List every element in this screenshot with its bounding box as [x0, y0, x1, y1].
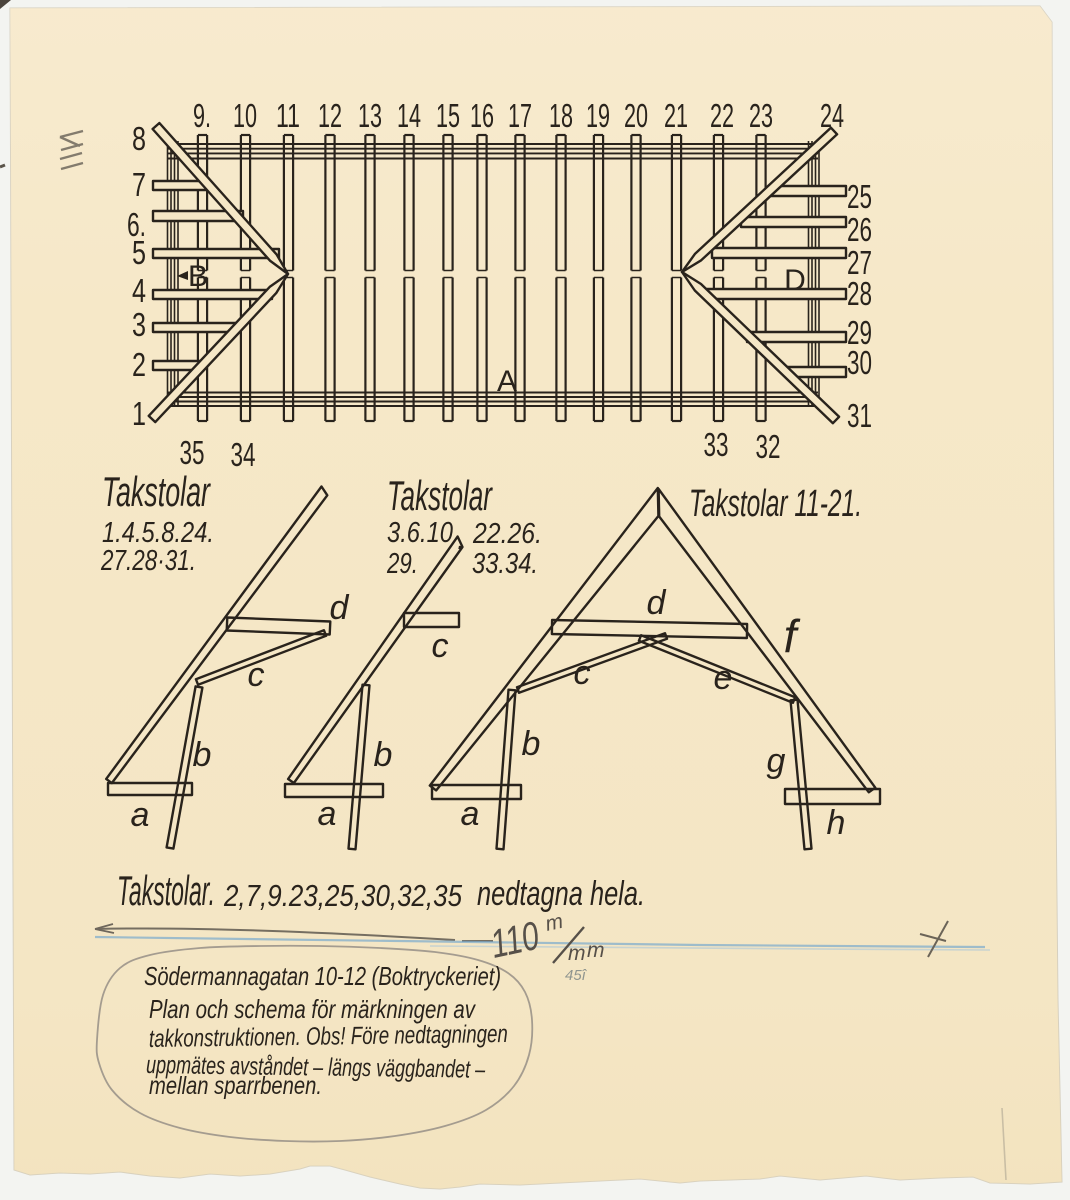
svg-text:c: c	[574, 654, 591, 692]
svg-text:Plan och schema för märkningen: Plan och schema för märkningen av	[149, 994, 477, 1024]
svg-text:a: a	[461, 795, 480, 833]
svg-text:1: 1	[132, 395, 146, 432]
svg-text:34: 34	[231, 436, 256, 473]
svg-text:m: m	[587, 939, 605, 962]
svg-text:a: a	[318, 795, 337, 833]
svg-text:e: e	[714, 659, 733, 697]
svg-text:4: 4	[132, 272, 146, 309]
svg-text:45î: 45î	[565, 967, 588, 984]
svg-text:26: 26	[847, 211, 872, 248]
svg-text:b: b	[522, 725, 541, 763]
svg-text:12: 12	[318, 97, 342, 134]
svg-text:Södermannagatan 10-12 (Boktryc: Södermannagatan 10-12 (Boktryckeriet)	[144, 961, 501, 991]
svg-text:17: 17	[508, 97, 532, 134]
svg-text:32: 32	[756, 428, 781, 465]
svg-text:d: d	[647, 584, 667, 622]
svg-text:14: 14	[397, 97, 421, 134]
svg-text:c: c	[432, 627, 449, 665]
svg-text:3.6.10: 3.6.10	[387, 517, 453, 549]
svg-text:23: 23	[749, 97, 773, 134]
svg-text:7: 7	[132, 166, 146, 203]
svg-text:22: 22	[710, 97, 734, 134]
svg-text:2,7,9.23,25,30,32,35: 2,7,9.23,25,30,32,35	[223, 878, 462, 913]
svg-text:Takstolar: Takstolar	[387, 472, 493, 519]
svg-text:3: 3	[132, 306, 146, 343]
svg-text:30: 30	[847, 344, 872, 381]
svg-text:13: 13	[358, 97, 382, 134]
svg-text:24: 24	[820, 97, 844, 134]
svg-text:m: m	[568, 942, 586, 965]
svg-text:a: a	[131, 796, 150, 834]
svg-text:19: 19	[586, 97, 610, 134]
svg-text:h: h	[827, 804, 846, 842]
svg-text:16: 16	[470, 97, 494, 134]
svg-text:d: d	[330, 589, 350, 627]
svg-text:31: 31	[847, 397, 872, 434]
svg-text:D: D	[784, 264, 806, 297]
svg-text:5: 5	[132, 234, 146, 271]
svg-text:29.: 29.	[386, 548, 418, 580]
svg-text:22.26.: 22.26.	[472, 518, 542, 550]
svg-text:20: 20	[624, 97, 648, 134]
svg-text:b: b	[193, 736, 212, 774]
svg-text:B: B	[188, 260, 208, 293]
svg-text:b: b	[374, 736, 393, 774]
svg-text:28: 28	[847, 275, 872, 312]
svg-text:takkonstruktionen. Obs! Före n: takkonstruktionen. Obs! Före nedtagninge…	[149, 1020, 508, 1053]
svg-text:nedtagna hela.: nedtagna hela.	[477, 875, 645, 913]
svg-text:11: 11	[276, 97, 300, 134]
svg-text:15: 15	[436, 97, 460, 134]
svg-text:g: g	[767, 742, 786, 780]
svg-text:9.: 9.	[193, 97, 211, 134]
svg-text:8: 8	[132, 120, 146, 157]
svg-text:35: 35	[180, 434, 205, 471]
svg-text:33: 33	[704, 426, 729, 463]
svg-text:Takstolar 11-21.: Takstolar 11-21.	[689, 483, 862, 525]
svg-text:33.34.: 33.34.	[472, 548, 538, 580]
svg-text:27.28·31.: 27.28·31.	[100, 545, 196, 577]
svg-text:18: 18	[549, 97, 573, 134]
svg-text:mellan sparrbenen.: mellan sparrbenen.	[149, 1072, 322, 1100]
svg-text:Takstolar.: Takstolar.	[117, 867, 215, 914]
svg-text:Takstolar: Takstolar	[102, 468, 211, 515]
svg-text:2: 2	[132, 346, 146, 383]
svg-text:10: 10	[233, 97, 257, 134]
svg-text:21: 21	[664, 97, 688, 134]
svg-text:A: A	[497, 365, 517, 398]
svg-text:c: c	[248, 656, 265, 694]
svg-text:25: 25	[847, 178, 872, 215]
